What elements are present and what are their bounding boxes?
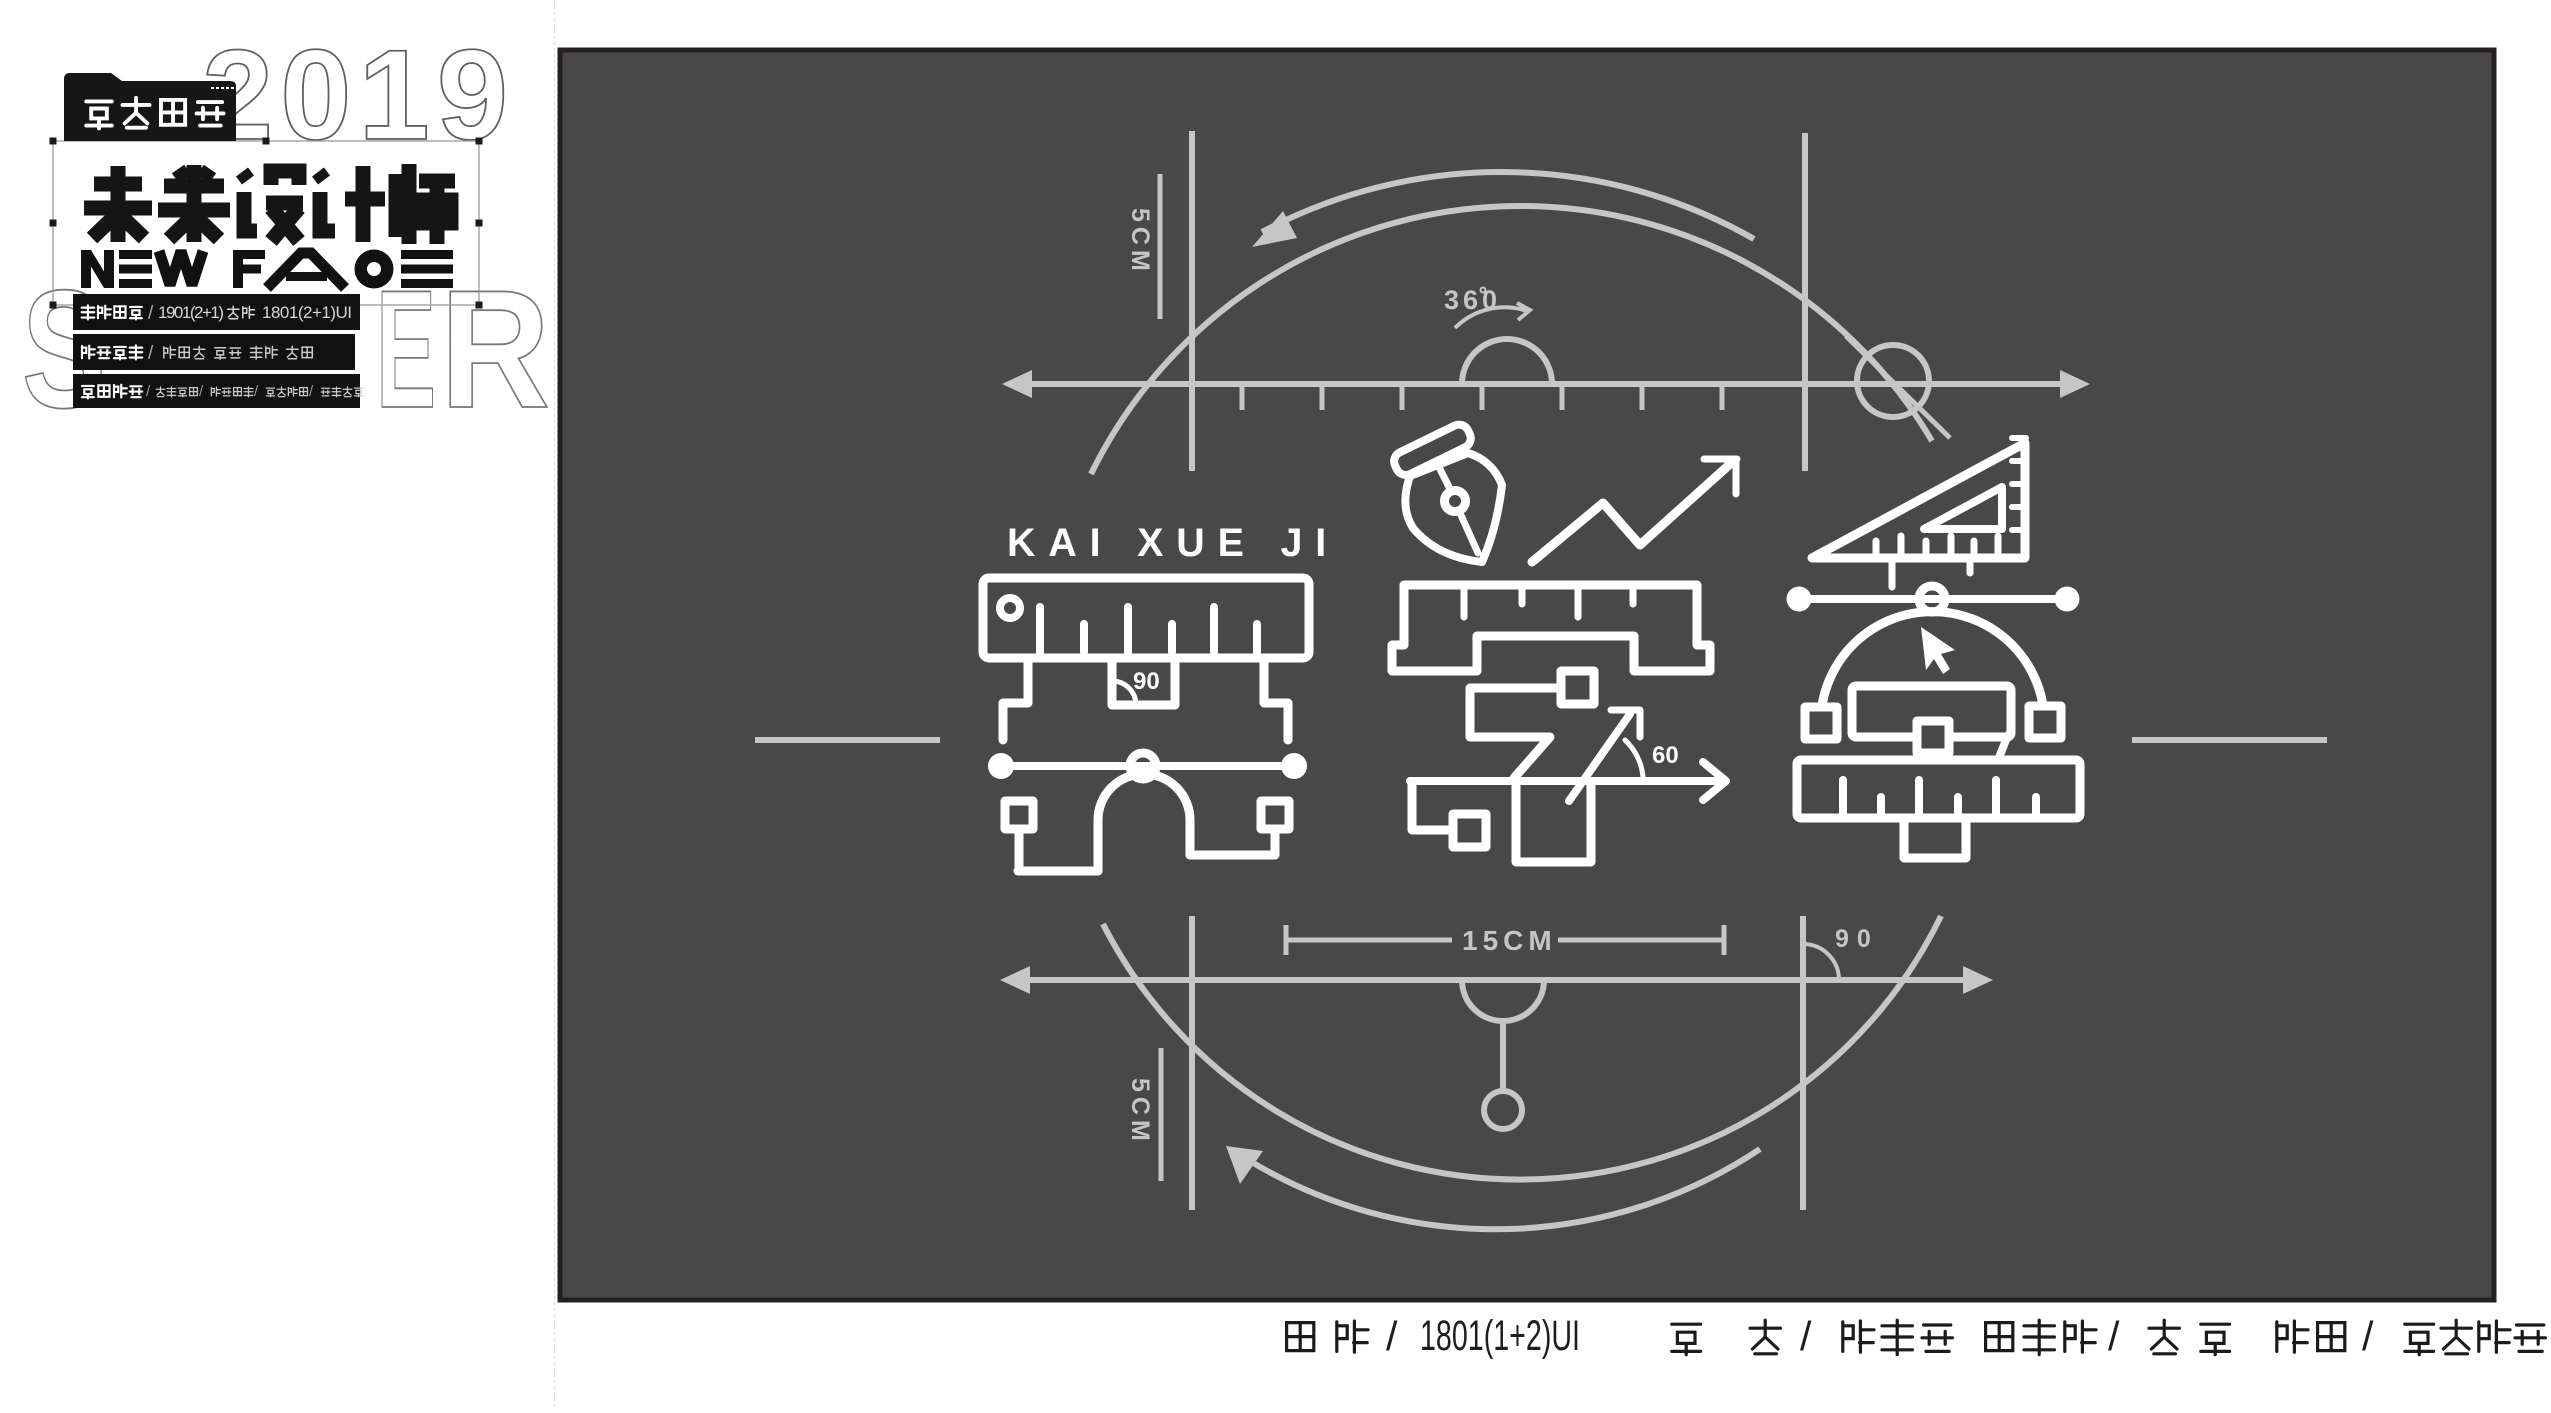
- svg-text:60: 60: [1652, 742, 1679, 769]
- svg-text:/: /: [1800, 1313, 1812, 1359]
- svg-text:1901(2+1): 1901(2+1): [158, 303, 224, 322]
- svg-text:/: /: [148, 343, 154, 364]
- svg-text:/: /: [148, 303, 154, 324]
- svg-text:90: 90: [1133, 668, 1160, 695]
- svg-text:/: /: [2362, 1313, 2374, 1359]
- svg-text:KAI XUE JI: KAI XUE JI: [1007, 521, 1339, 565]
- svg-text:15CM: 15CM: [1462, 925, 1557, 956]
- svg-text:1801(2+1)UI: 1801(2+1)UI: [262, 303, 352, 322]
- svg-text:360: 360: [1444, 285, 1501, 315]
- svg-text:5CM: 5CM: [1126, 1078, 1154, 1146]
- svg-text:1801(1+2)UI: 1801(1+2)UI: [1420, 1312, 1580, 1360]
- svg-text:R: R: [440, 255, 550, 443]
- svg-text:5CM: 5CM: [1126, 208, 1154, 276]
- svg-text:/: /: [1386, 1313, 1398, 1359]
- svg-text:/: /: [2108, 1313, 2120, 1359]
- svg-text:90: 90: [1835, 925, 1879, 953]
